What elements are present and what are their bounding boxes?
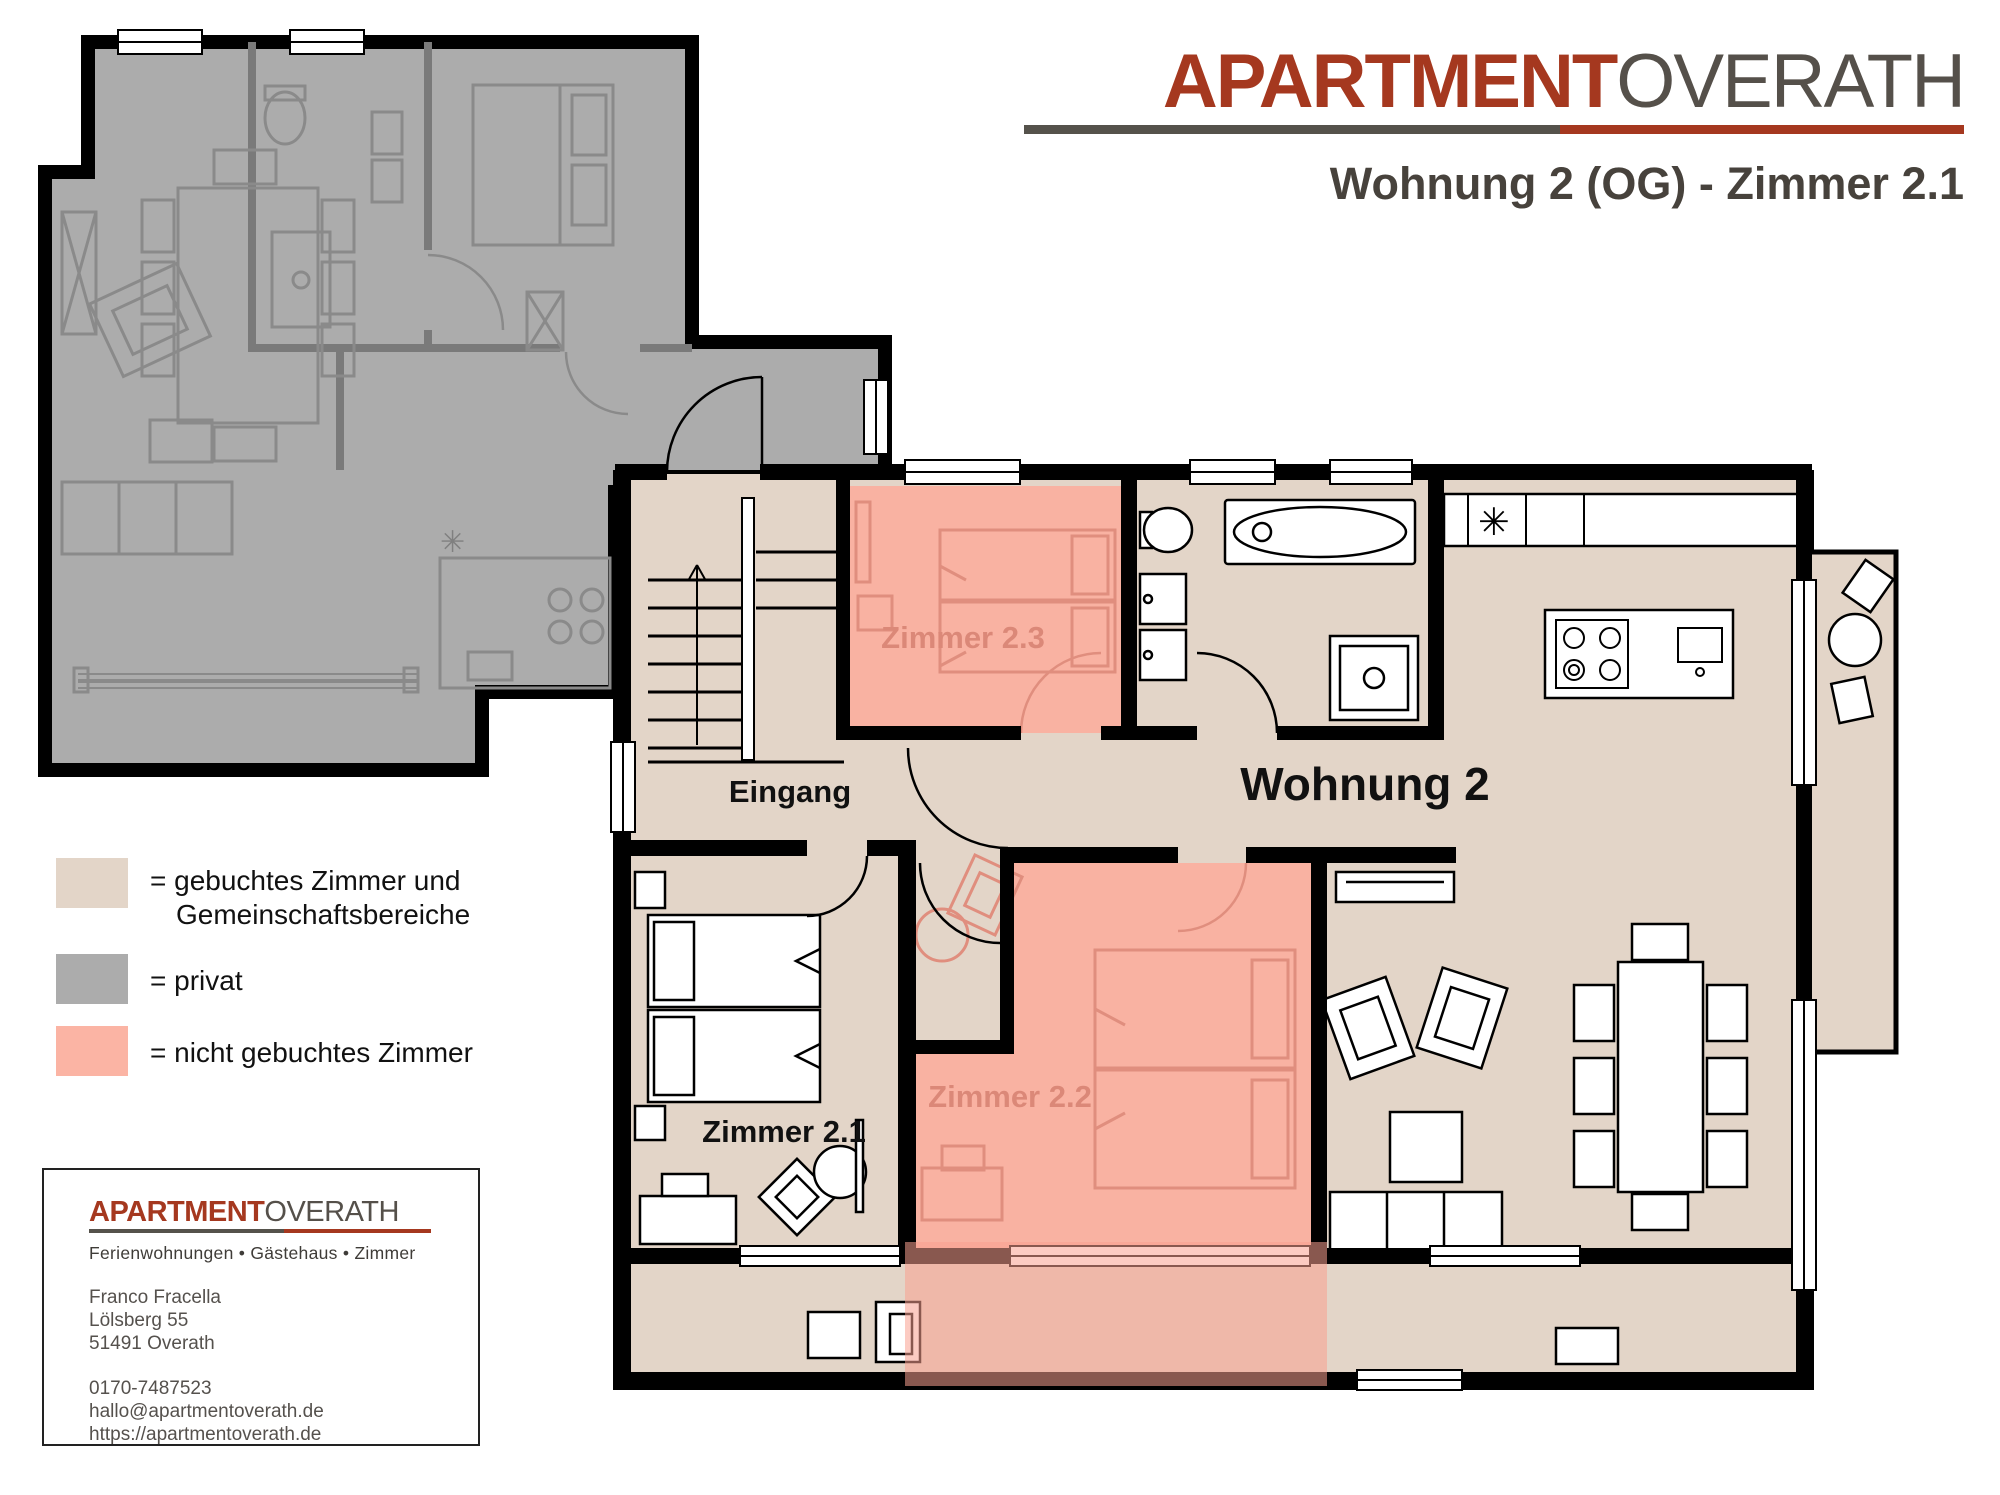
legend-swatch-booked [56,858,128,908]
contact-city: 51491 Overath [89,1332,458,1355]
room-label-zimmer-2-1: Zimmer 2.1 [702,1114,866,1149]
room-label-zimmer-2-2: Zimmer 2.2 [928,1079,1092,1114]
zimmer-2-2-terrace-overlay [905,1242,1327,1386]
brand-logo-part1: APARTMENT [1163,39,1616,124]
private-dishwasher-asterisk-icon: ✳ [440,525,465,560]
legend-label-not-booked: = nicht gebuchtes Zimmer [150,1026,473,1070]
room-label-wohnung-2: Wohnung 2 [1240,758,1490,810]
legend-swatch-private [56,954,128,1004]
kitchen-dishwasher-asterisk-icon: ✳ [1478,500,1510,544]
contact-phone: 0170-7487523 [89,1377,458,1400]
contact-street: Lölsberg 55 [89,1309,458,1332]
legend-swatch-not-booked [56,1026,128,1076]
underline-gray-segment [1024,125,1560,134]
balcony [1812,552,1896,1052]
legend-item-not-booked: = nicht gebuchtes Zimmer [56,1026,476,1076]
contact-address-block: Franco Fracella Lölsberg 55 51491 Overat… [89,1286,458,1355]
contact-name: Franco Fracella [89,1286,458,1309]
legend: = gebuchtes Zimmer und Gemeinschaftsbere… [56,858,476,1098]
underline-red-segment [1560,125,1964,134]
legend-item-booked: = gebuchtes Zimmer und Gemeinschaftsbere… [56,858,476,932]
contact-card: APARTMENTOVERATH Ferienwohnungen • Gäste… [42,1168,480,1446]
contact-card-logo: APARTMENTOVERATH [89,1198,458,1227]
brand-logo-underline [1024,125,1964,134]
contact-card-logo-part2: OVERATH [264,1196,399,1228]
room-label-eingang: Eingang [729,774,851,809]
contact-card-logo-part1: APARTMENT [89,1196,264,1228]
contact-card-logo-underline [89,1229,431,1233]
contact-website: https://apartmentoverath.de [89,1423,458,1446]
brand-logo: APARTMENTOVERATH [1024,44,1964,120]
brand-logo-part2: OVERATH [1616,39,1964,124]
legend-item-private: = privat [56,954,476,1004]
header: APARTMENTOVERATH Wohnung 2 (OG) - Zimmer… [1024,44,1964,210]
room-label-zimmer-2-3: Zimmer 2.3 [881,620,1045,655]
contact-card-tagline: Ferienwohnungen • Gästehaus • Zimmer [89,1243,458,1264]
legend-label-booked-line1: = gebuchtes Zimmer und [150,864,470,898]
contact-comm-block: 0170-7487523 hallo@apartmentoverath.de h… [89,1377,458,1446]
legend-label-private: = privat [150,954,243,998]
page-title: Wohnung 2 (OG) - Zimmer 2.1 [1024,158,1964,210]
contact-email: hallo@apartmentoverath.de [89,1400,458,1423]
legend-label-booked-line2: Gemeinschaftsbereiche [150,898,470,932]
